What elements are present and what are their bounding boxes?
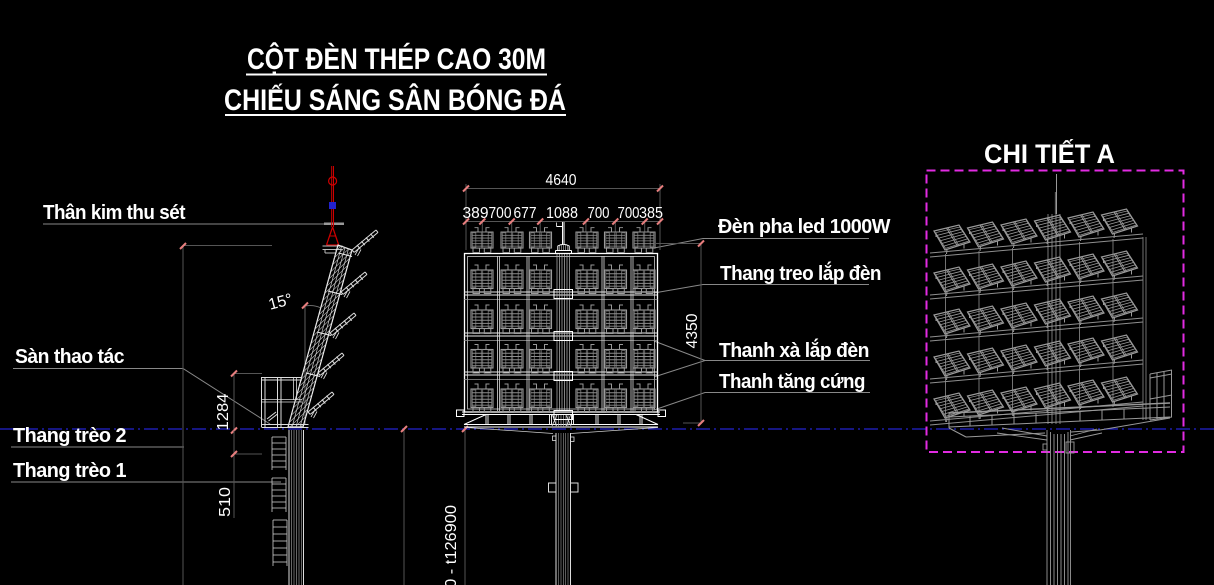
svg-text:700: 700 — [618, 205, 640, 222]
svg-text:Thân kim thu sét: Thân kim thu sét — [43, 202, 186, 224]
svg-text:CHI TIẾT A: CHI TIẾT A — [984, 138, 1115, 169]
svg-text:4640: 4640 — [546, 172, 577, 189]
svg-text:700: 700 — [489, 205, 512, 222]
svg-text:700: 700 — [588, 205, 610, 222]
svg-text:CỘT ĐÈN THÉP CAO 30M: CỘT ĐÈN THÉP CAO 30M — [247, 42, 546, 76]
svg-text:677: 677 — [514, 205, 537, 222]
svg-text:1284: 1284 — [215, 393, 232, 430]
svg-text:510: 510 — [217, 487, 234, 517]
svg-text:Thanh tăng cứng: Thanh tăng cứng — [719, 371, 865, 393]
svg-text:Sàn thao tác: Sàn thao tác — [15, 346, 124, 368]
svg-text:CHIẾU SÁNG SÂN BÓNG ĐÁ: CHIẾU SÁNG SÂN BÓNG ĐÁ — [224, 83, 566, 117]
svg-text:Thang treo lắp đèn: Thang treo lắp đèn — [720, 261, 881, 285]
svg-text:4350: 4350 — [684, 313, 701, 348]
svg-text:Đèn pha led 1000W: Đèn pha led 1000W — [718, 216, 891, 238]
svg-text:385: 385 — [639, 205, 663, 222]
svg-text:Thang trèo 1: Thang trèo 1 — [13, 460, 126, 482]
svg-text:50 - t126900: 50 - t126900 — [443, 505, 460, 585]
svg-text:Thang trèo 2: Thang trèo 2 — [13, 425, 126, 447]
svg-text:1088: 1088 — [546, 205, 578, 222]
svg-text:Thanh xà lắp đèn: Thanh xà lắp đèn — [719, 338, 869, 362]
